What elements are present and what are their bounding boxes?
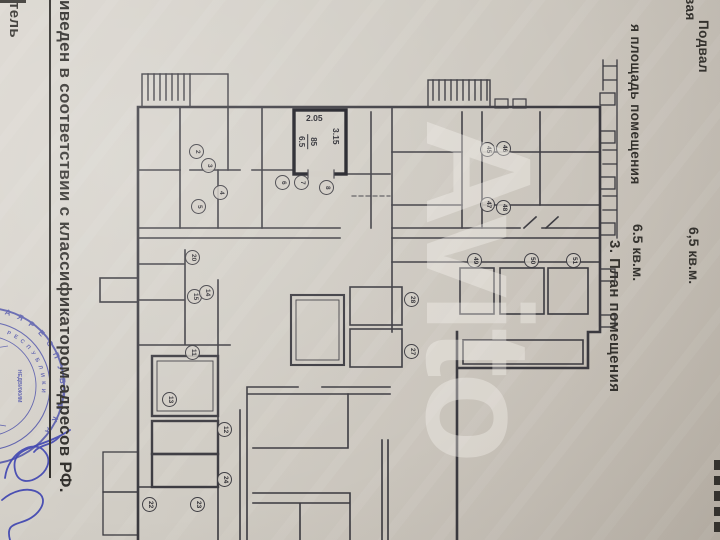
room-number-marker: 27 xyxy=(404,344,419,359)
room-number-marker: 8 xyxy=(319,180,334,195)
room-dim-top: 2.05 xyxy=(306,113,323,123)
disclaimer-text: иведен в соответствии с классификатором … xyxy=(55,0,75,493)
svg-text:Р Е С П У Б Л И К И: Р Е С П У Б Л И К И xyxy=(6,330,46,394)
room-number-marker: 22 xyxy=(142,497,157,512)
room-number-marker: 20 xyxy=(185,250,200,265)
room-number-marker: 28 xyxy=(404,292,419,307)
staircase-top-right xyxy=(428,80,490,107)
room-number-marker: 48 xyxy=(496,200,511,215)
room-number-marker: 2 xyxy=(189,144,204,159)
floor-label: Подвал xyxy=(696,20,711,73)
room-number-marker: 6 xyxy=(275,175,290,190)
floor-area-value: 6,5 кв.м. xyxy=(686,227,702,284)
photo-of-floorplan-document: { "header": { "room_name_fragment": "вая… xyxy=(0,0,720,540)
disclaimer-underline xyxy=(49,0,51,478)
room-number: 85 xyxy=(309,137,318,146)
stamp-inner-text: НЕДВИЖИМ xyxy=(16,370,22,403)
room-number-area-fraction: 85 6.5 xyxy=(297,134,318,149)
compiler-fragment: тель xyxy=(6,2,23,38)
room-number-marker: 46 xyxy=(496,141,511,156)
stamp-inner-arc-text: Р Е С П У Б Л И К И xyxy=(6,330,46,394)
room-number-marker: 5 xyxy=(191,199,206,214)
room-dim-side: 3.15 xyxy=(331,128,341,145)
room-area: 6.5 xyxy=(297,136,306,147)
staircase-top-left xyxy=(142,74,228,107)
room-number-marker: 4 xyxy=(213,185,228,200)
room-number-marker: 24 xyxy=(217,472,232,487)
room-number-marker: 49 xyxy=(467,253,482,268)
room-number-marker: 23 xyxy=(190,497,205,512)
room-number-marker: 45 xyxy=(480,142,495,157)
room-name-fragment: вая xyxy=(683,0,698,21)
room-number-marker: 47 xyxy=(480,197,495,212)
room-number-marker: 7 xyxy=(294,175,309,190)
area-row-label: я площадь помещения xyxy=(628,24,643,185)
room-number-marker: 13 xyxy=(162,392,177,407)
room-number-marker: 3 xyxy=(201,158,216,173)
plan-section-title: 3. План помещения xyxy=(606,240,623,393)
room-number-marker: 12 xyxy=(217,422,232,437)
cut-off-text-marks xyxy=(714,460,720,532)
room-number-marker: 14 xyxy=(199,285,214,300)
room-number-marker: 11 xyxy=(185,345,200,360)
area-row-value: 6.5 кв.м. xyxy=(630,224,646,281)
fraction-bar xyxy=(307,134,308,149)
room-number-marker: 50 xyxy=(524,253,539,268)
room-number-marker: 51 xyxy=(566,253,581,268)
